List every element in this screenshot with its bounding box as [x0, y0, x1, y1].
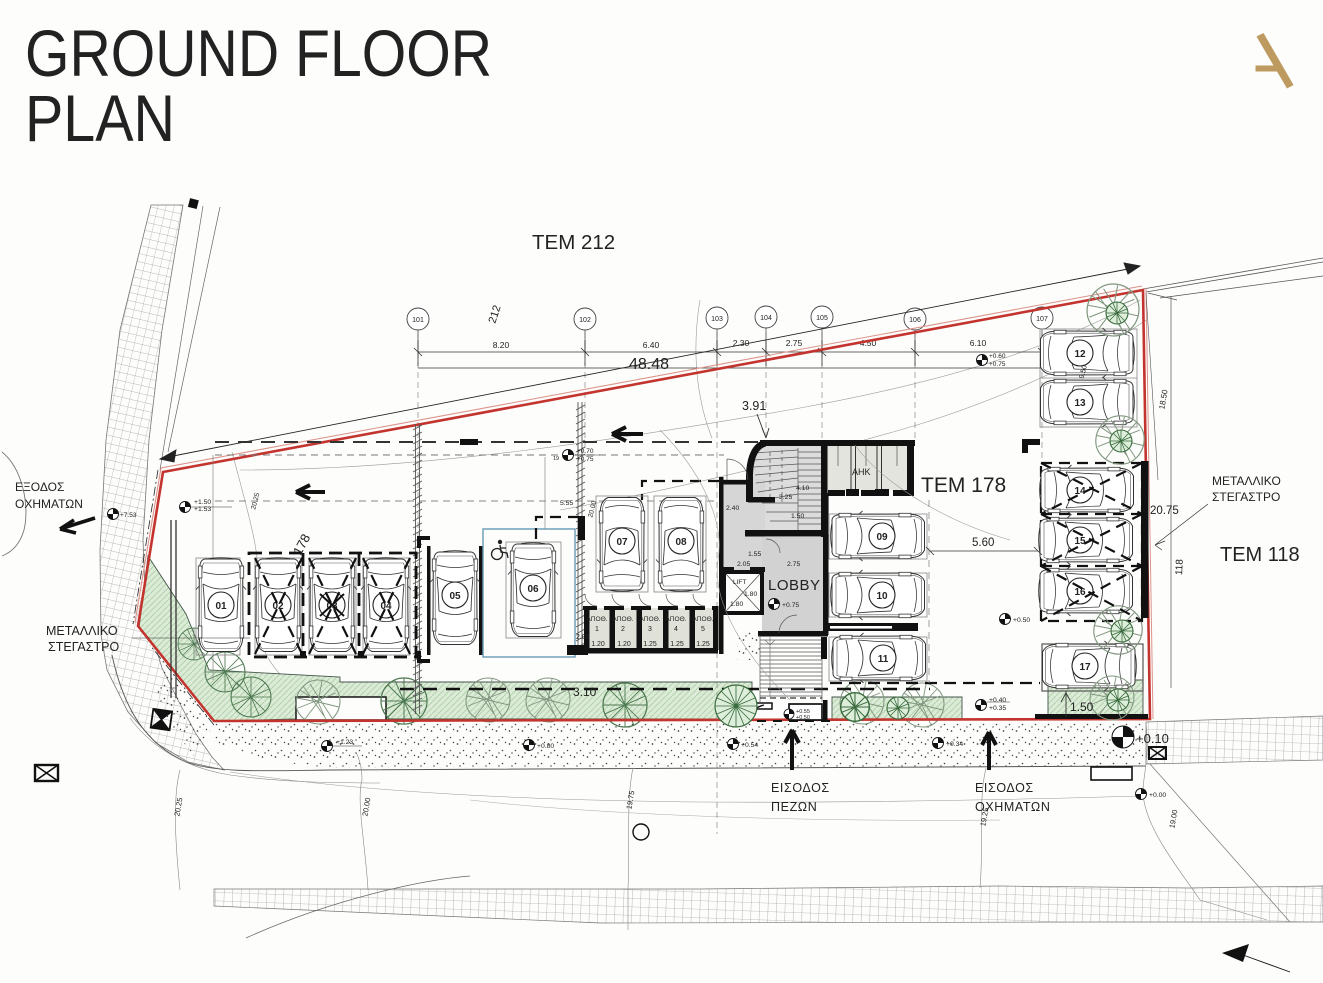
svg-text:TEM 212: TEM 212: [532, 231, 615, 254]
svg-text:5.60: 5.60: [972, 537, 994, 549]
svg-text:3.25: 3.25: [779, 494, 792, 501]
svg-text:101: 101: [412, 317, 424, 324]
svg-text:LOBBY: LOBBY: [768, 577, 821, 594]
svg-text:ΕΞΟΔΟΣ: ΕΞΟΔΟΣ: [15, 480, 64, 494]
svg-text:16: 16: [1074, 587, 1086, 598]
svg-text:118: 118: [1174, 558, 1186, 575]
svg-text:2.05: 2.05: [737, 561, 750, 568]
svg-text:LIFT: LIFT: [733, 579, 746, 586]
svg-text:102: 102: [579, 317, 591, 324]
svg-text:103: 103: [711, 316, 723, 323]
svg-text:ΑΠΟΘ.: ΑΠΟΘ.: [639, 616, 660, 623]
svg-text:+1.23: +1.23: [336, 739, 353, 746]
svg-text:6.40: 6.40: [643, 340, 660, 350]
svg-text:3.91: 3.91: [742, 399, 766, 413]
svg-text:ΑΠΟΘ.: ΑΠΟΘ.: [612, 616, 633, 623]
svg-text:ΣΤΕΓΑΣΤΡΟ: ΣΤΕΓΑΣΤΡΟ: [48, 640, 119, 654]
svg-text:2.05: 2.05: [576, 634, 590, 641]
svg-text:+0.10: +0.10: [1136, 731, 1169, 746]
svg-text:PLAN: PLAN: [25, 81, 175, 155]
svg-text:2: 2: [621, 626, 625, 633]
svg-text:ΟΧΗΜΑΤΩΝ: ΟΧΗΜΑΤΩΝ: [15, 497, 83, 511]
svg-text:ΜΕΤΑΛΛΙΚΟ: ΜΕΤΑΛΛΙΚΟ: [1212, 474, 1281, 488]
svg-text:3: 3: [648, 626, 652, 633]
svg-text:AHK: AHK: [852, 467, 871, 477]
svg-text:ΟΧΗΜΑΤΩΝ: ΟΧΗΜΑΤΩΝ: [975, 800, 1051, 814]
svg-text:+0.80: +0.80: [537, 743, 554, 750]
svg-text:ΑΠΟΘ.: ΑΠΟΘ.: [665, 616, 686, 623]
svg-text:1.20: 1.20: [591, 641, 605, 648]
svg-text:02: 02: [272, 601, 284, 612]
svg-text:+0.54: +0.54: [741, 742, 758, 749]
svg-text:2.30: 2.30: [733, 338, 750, 348]
svg-text:8.20: 8.20: [493, 340, 510, 350]
svg-text:2.75: 2.75: [787, 561, 800, 568]
svg-text:12: 12: [1074, 349, 1086, 360]
svg-text:20.75: 20.75: [1150, 505, 1179, 517]
svg-text:11: 11: [878, 654, 889, 665]
svg-text:+0.00: +0.00: [1149, 792, 1166, 799]
svg-text:17: 17: [1079, 662, 1091, 673]
svg-text:1.80: 1.80: [744, 591, 757, 598]
svg-text:+0.50: +0.50: [1013, 617, 1030, 624]
svg-text:13: 13: [1074, 398, 1086, 409]
svg-text:ΜΕΤΑΛΛΙΚΟ: ΜΕΤΑΛΛΙΚΟ: [46, 624, 118, 638]
svg-text:ΑΠΟΘ.: ΑΠΟΘ.: [586, 616, 607, 623]
svg-text:+0.75: +0.75: [782, 602, 799, 609]
svg-text:10: 10: [876, 591, 888, 602]
svg-text:+0.75: +0.75: [989, 361, 1006, 368]
svg-text:05: 05: [449, 591, 461, 602]
svg-text:+1.50: +1.50: [194, 499, 211, 506]
svg-text:2.40: 2.40: [726, 505, 739, 512]
svg-text:5: 5: [701, 626, 705, 633]
svg-text:07: 07: [616, 537, 628, 548]
svg-text:4.10: 4.10: [796, 485, 809, 492]
svg-text:+0.75: +0.75: [577, 456, 594, 463]
svg-text:1.55: 1.55: [748, 551, 761, 558]
svg-text:GROUND FLOOR: GROUND FLOOR: [25, 16, 492, 90]
svg-text:1.25: 1.25: [643, 641, 657, 648]
svg-text:+0.34: +0.34: [946, 741, 963, 748]
svg-text:+0.60: +0.60: [989, 353, 1006, 360]
svg-text:ΑΠΟΘ.: ΑΠΟΘ.: [692, 616, 713, 623]
svg-text:TEM 118: TEM 118: [1220, 544, 1300, 566]
svg-text:4: 4: [674, 626, 678, 633]
svg-text:1.20: 1.20: [617, 641, 631, 648]
svg-text:+1.53: +1.53: [194, 506, 211, 513]
svg-text:19: 19: [553, 456, 559, 462]
svg-text:ΠΕΖΩΝ: ΠΕΖΩΝ: [771, 800, 817, 814]
svg-text:+0.40: +0.40: [989, 697, 1006, 704]
svg-text:01: 01: [215, 601, 227, 612]
svg-text:+0.70: +0.70: [577, 448, 594, 455]
svg-text:+7.53: +7.53: [120, 512, 137, 519]
svg-text:104: 104: [760, 315, 772, 322]
svg-text:48.48: 48.48: [629, 356, 669, 373]
svg-text:1.50: 1.50: [1070, 700, 1094, 714]
svg-text:1.50: 1.50: [791, 513, 804, 520]
svg-text:09: 09: [876, 532, 888, 543]
svg-text:2.75: 2.75: [786, 338, 803, 348]
svg-text:04: 04: [380, 601, 392, 612]
svg-text:5.55: 5.55: [560, 500, 573, 507]
svg-text:106: 106: [909, 317, 921, 324]
svg-text:06: 06: [527, 584, 539, 595]
svg-text:1.80: 1.80: [730, 601, 743, 608]
svg-text:+0.35: +0.35: [989, 705, 1006, 712]
svg-text:ΕΙΣΟΔΟΣ: ΕΙΣΟΔΟΣ: [975, 781, 1034, 795]
svg-text:105: 105: [816, 315, 828, 322]
svg-text:1: 1: [595, 626, 599, 633]
svg-text:TEM 178: TEM 178: [921, 474, 1006, 497]
svg-text:ΣΤΕΓΑΣΤΡΟ: ΣΤΕΓΑΣΤΡΟ: [1212, 490, 1280, 504]
svg-text:3.10: 3.10: [573, 685, 597, 699]
svg-text:107: 107: [1036, 316, 1048, 323]
svg-text:08: 08: [675, 537, 687, 548]
svg-text:15: 15: [1074, 536, 1086, 547]
svg-text:ΕΙΣΟΔΟΣ: ΕΙΣΟΔΟΣ: [771, 781, 830, 795]
svg-text:6.10: 6.10: [970, 338, 987, 348]
svg-text:1.25: 1.25: [670, 641, 684, 648]
svg-text:1.25: 1.25: [696, 641, 710, 648]
